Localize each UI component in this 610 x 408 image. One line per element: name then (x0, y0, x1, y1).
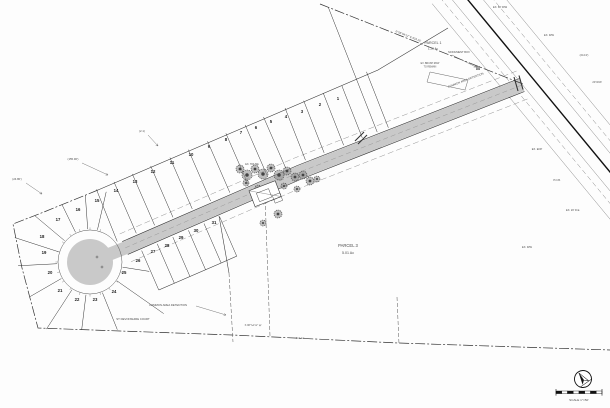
lot-division-radial (82, 295, 86, 330)
lot-division (188, 150, 210, 201)
lot-division (304, 101, 324, 153)
lot-number: 15 (95, 198, 100, 203)
lot-division-radial (102, 293, 117, 330)
lot-division (173, 237, 190, 276)
lot-number: 11 (170, 160, 175, 165)
map-label: PARCEL 3 (338, 243, 358, 248)
map-label: 20' R/W (592, 80, 602, 84)
scale-bar-label: SCALE 1"=50' (569, 398, 589, 402)
scale-bar-segment (568, 391, 574, 394)
cross-road-line (432, 4, 610, 258)
lot-division (96, 189, 117, 241)
tree-center (277, 213, 280, 216)
lot-number: 29 (179, 235, 184, 240)
tree-center (294, 176, 297, 179)
road (55, 71, 527, 297)
lot-division (220, 217, 237, 256)
scale-bar-segment (579, 391, 585, 394)
monument-box-dot (477, 67, 479, 69)
lot-division (366, 72, 388, 128)
lot-division-radial (15, 238, 59, 252)
bulb-tick (109, 288, 111, 290)
lot-number: 26 (136, 258, 141, 263)
lot-number: 25 (122, 270, 127, 275)
lower-lots-closing-line (219, 216, 229, 273)
lot-number: 30 (194, 228, 199, 233)
lot-division-radial (123, 267, 150, 271)
bulb-tick (79, 292, 80, 294)
lot-number: 1 (337, 96, 340, 101)
bulb-tick (57, 272, 59, 273)
tree-center (296, 188, 298, 190)
cross-road-line (440, 0, 610, 252)
lot-division (142, 251, 159, 290)
tree-center (277, 173, 281, 177)
map-label: (24.13') (580, 53, 589, 57)
scale-bar: SCALE 1"=50' (556, 389, 602, 402)
cross-road (432, 0, 610, 258)
road-row-line (131, 99, 527, 262)
lot-number: 27 (151, 249, 156, 254)
leader-line (82, 163, 108, 175)
lot-number: 17 (56, 217, 61, 222)
bulb-tick (62, 281, 64, 283)
cross-road-line (465, 0, 610, 231)
lot-number: 18 (40, 234, 45, 239)
cross-road-line (455, 0, 610, 239)
map-label: EX. R/W (522, 245, 532, 249)
lot-division (188, 230, 205, 269)
map-label: 612.43' (296, 336, 305, 340)
map-label: (2.1) (139, 129, 145, 133)
bulb-tick (100, 292, 101, 294)
map-label: S 88°54'12" W (245, 323, 262, 327)
tree-center (245, 182, 247, 184)
plat-drawing-page: 1234567891011121314151617181920212223242… (0, 0, 610, 408)
lot-number: 21 (58, 288, 63, 293)
map-label: N 58°04'12" E 634.15' (395, 29, 422, 43)
map-label: EX. 60' R/W (493, 5, 508, 9)
bulb-tick (79, 229, 80, 231)
lot-division-radial (85, 195, 87, 229)
internal-boundary (265, 194, 270, 336)
map-label: (155.90') (68, 157, 79, 161)
lot-division-radial (18, 264, 57, 266)
tree-center (270, 167, 273, 170)
bulb-tick (62, 242, 64, 244)
tree-center (245, 173, 249, 177)
tree-center (262, 222, 264, 224)
road-edge (128, 92, 525, 255)
tree-center (286, 170, 289, 173)
lot-number: 13 (133, 179, 138, 184)
map-label: EX. EOP (532, 147, 543, 151)
leader-line (196, 306, 226, 315)
tree-center (309, 180, 312, 183)
scale-bar-segment (573, 391, 579, 394)
leader-line (148, 135, 158, 146)
lot-number: 4 (285, 114, 288, 119)
scale-bar-segment (591, 391, 597, 394)
leader-line (26, 183, 42, 194)
map-label: TO REMAIN (424, 66, 437, 69)
internal-boundary (397, 297, 399, 344)
lower-lots-rear-line (159, 256, 237, 290)
lot-number: 16 (76, 207, 81, 212)
lot-division-radial (46, 290, 72, 329)
scale-bar-segment (556, 391, 562, 394)
lot-lines (15, 7, 389, 329)
bulb-tick (70, 234, 72, 236)
map-label: EX. 20' D.E. (566, 208, 580, 212)
lot-division (264, 117, 286, 168)
tree-center (239, 168, 242, 171)
north-arrow (571, 367, 595, 391)
plat-svg: 1234567891011121314151617181920212223242… (0, 0, 610, 408)
lot-number: 10 (189, 152, 194, 157)
north-arrow-icon (571, 367, 595, 391)
lot-number: 8 (225, 137, 228, 142)
lot-division-radial (29, 279, 61, 298)
cross-road-line (478, 0, 610, 220)
lot-division (204, 223, 221, 262)
lot-number: 20 (48, 270, 53, 275)
map-label: MONUMENT BOX (448, 50, 470, 54)
map-label: EX. HOUSE (245, 163, 259, 166)
lot-number: 23 (93, 297, 98, 302)
lot-division (208, 141, 230, 192)
map-label: COMMON AREA DETENTION (149, 303, 187, 307)
lot-number: 3 (301, 109, 304, 114)
lot-number: 24 (112, 289, 117, 294)
lot-number: 19 (42, 250, 47, 255)
scale-bar-segment (596, 391, 602, 394)
lot-number: 6 (255, 125, 258, 130)
bulb-tick (100, 229, 101, 231)
map-label: (24.80') (12, 177, 21, 181)
lot-division (170, 158, 192, 209)
map-label: EX. R/W (544, 33, 554, 37)
lot-number: 28 (165, 243, 170, 248)
lot-number: 12 (151, 169, 156, 174)
tree-center (316, 178, 318, 180)
lot-number: 7 (240, 130, 243, 135)
lot-division (285, 108, 305, 160)
lot-division-radial (62, 204, 76, 232)
cul-de-sac-pavement (67, 239, 113, 285)
lot-number: 14 (114, 188, 119, 193)
lot-division (157, 244, 174, 283)
map-label: ST DEVONSHIRE COURT (116, 317, 150, 321)
scale-bar-segment (585, 391, 591, 394)
lot-division (342, 86, 362, 138)
internal-boundary (229, 273, 233, 342)
tree-center (261, 172, 265, 176)
lot-number: 2 (319, 102, 322, 107)
map-label: 5.01 Ac (342, 251, 354, 255)
lot-number: 31 (212, 220, 217, 225)
map-label: P.O.B. (553, 178, 561, 182)
leader-line (452, 55, 476, 67)
lot-division (323, 93, 343, 145)
tree-center (283, 185, 285, 187)
lot-number: 22 (75, 297, 80, 302)
map-label: 1.23 Ac (428, 47, 439, 51)
map-label: COMMON AREA DETENTION (447, 71, 484, 88)
lot-number: 5 (270, 119, 273, 124)
scale-bar-segment (562, 391, 568, 394)
map-label: EX. BRUSH ROW (421, 63, 440, 65)
tree-center (254, 168, 257, 171)
tree-center (302, 174, 305, 177)
bulb-tick (70, 288, 72, 290)
map-label: PARCEL 1 (425, 41, 442, 45)
